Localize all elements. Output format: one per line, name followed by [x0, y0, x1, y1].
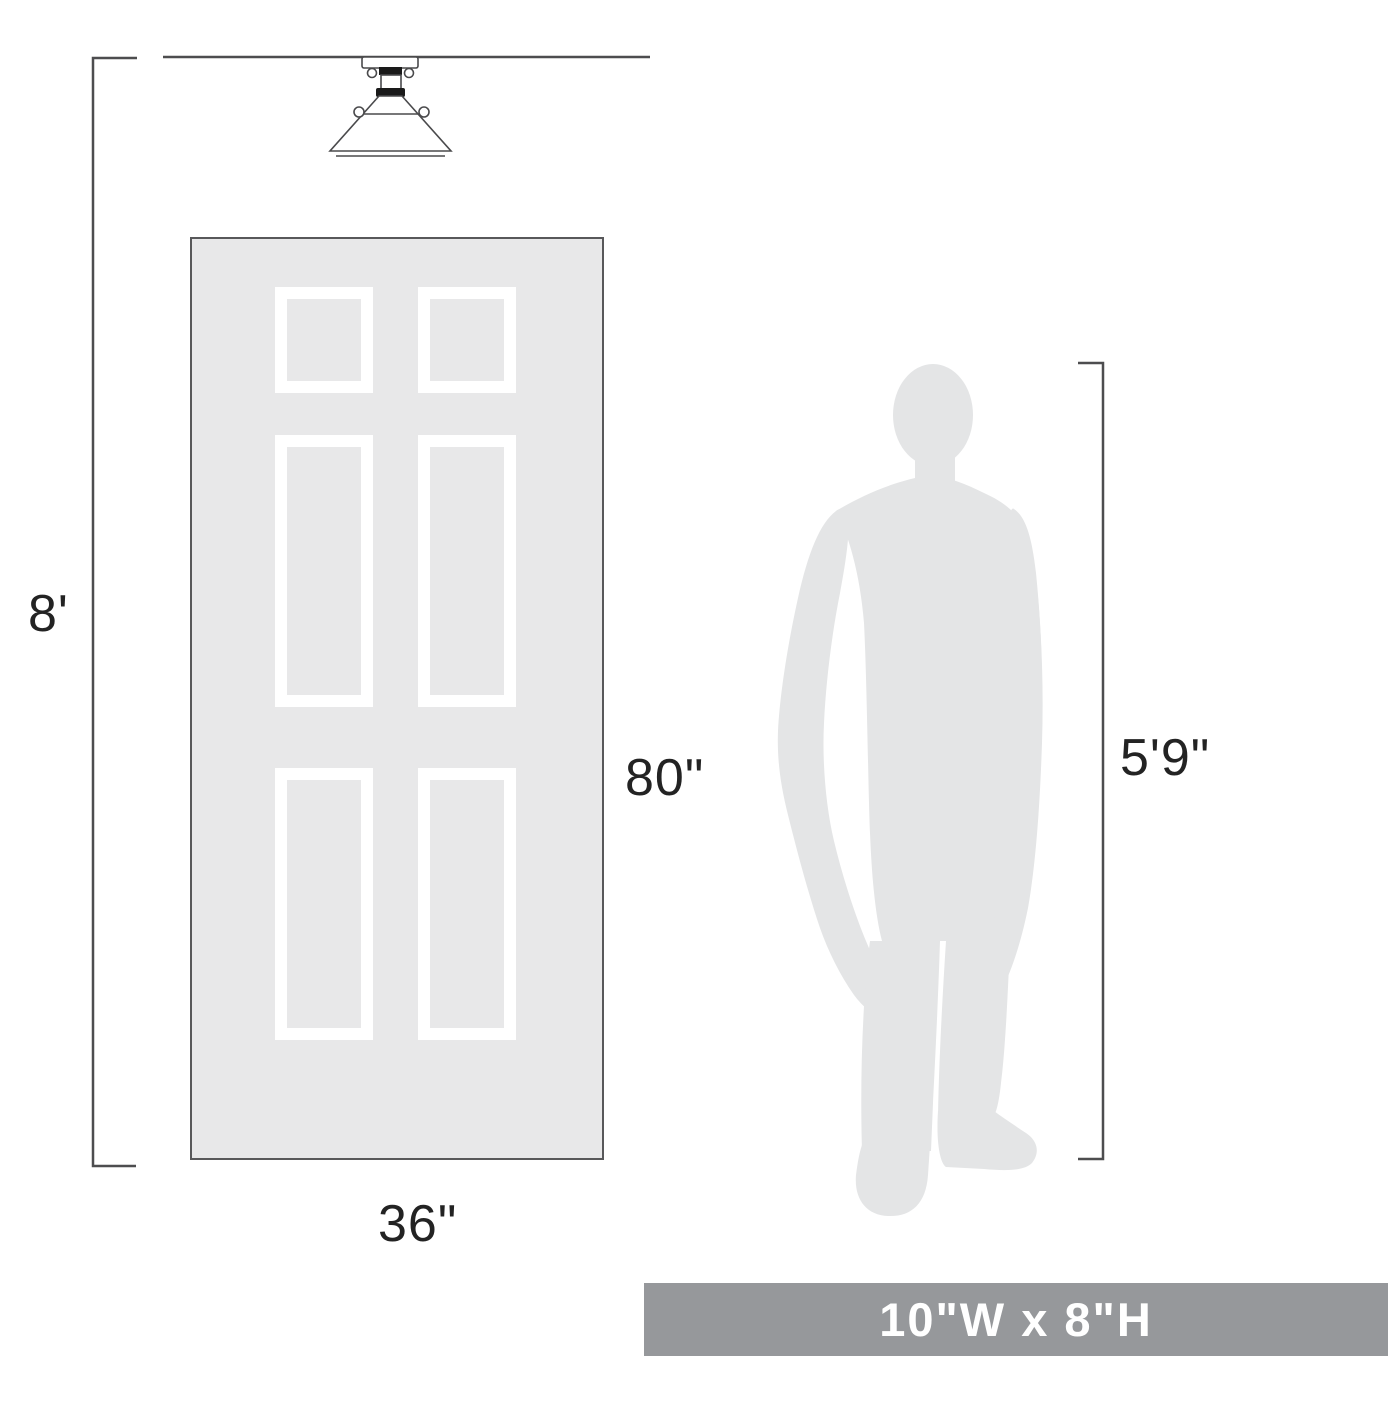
- person-height-bracket: [1078, 363, 1103, 1159]
- person-height-label: 5'9": [1120, 732, 1210, 784]
- product-dimensions-banner: 10"W x 8"H: [644, 1283, 1388, 1356]
- ceiling-light-icon: [330, 57, 451, 156]
- ceiling-height-label: 8': [28, 588, 69, 640]
- size-diagram: 8' 80" 36" 5'9" 10"W x 8"H: [0, 0, 1391, 1407]
- person-silhouette-icon: [778, 364, 1043, 1216]
- door-panel: [275, 768, 373, 1040]
- ceiling-height-bracket: [93, 58, 137, 1166]
- door-panel: [418, 768, 516, 1040]
- door-width-label: 36": [378, 1198, 457, 1250]
- door-panel: [418, 287, 516, 393]
- product-dimensions-label: 10"W x 8"H: [879, 1296, 1153, 1343]
- door-panel: [275, 435, 373, 707]
- door-illustration: [190, 237, 604, 1160]
- door-panel: [275, 287, 373, 393]
- door-panel: [418, 435, 516, 707]
- door-height-label: 80": [625, 752, 704, 804]
